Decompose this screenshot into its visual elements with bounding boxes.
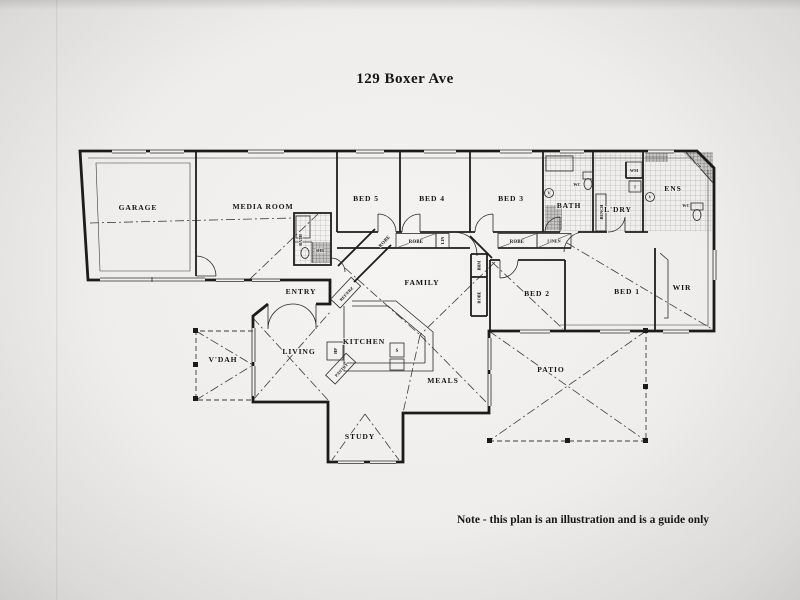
- room-label-bed3: BED 3: [498, 194, 524, 203]
- fixture-label-bath-small: BATH: [298, 233, 303, 245]
- room-label-bath: BATH: [557, 201, 582, 210]
- room-label-living: LIVING: [282, 347, 315, 356]
- room-label-vdah: V'DAH: [209, 355, 238, 364]
- fixture-label-robe-bed3: ROBE: [510, 240, 524, 245]
- room-label-wir: WIR: [673, 283, 692, 292]
- room-label-bed1: BED 1: [614, 287, 640, 296]
- room-label-garage: GARAGE: [119, 203, 158, 212]
- room-label-ens: ENS: [664, 184, 681, 193]
- fixture-label-wm: WM: [630, 168, 638, 173]
- room-label-media-room: MEDIA ROOM: [232, 202, 293, 211]
- fixture-label-shr: SHR: [316, 248, 326, 253]
- floor-plan-drawing: 129 Boxer Ave Note - this plan is an ill…: [0, 0, 800, 600]
- scanned-floor-plan-photo: 129 Boxer Ave Note - this plan is an ill…: [0, 0, 800, 600]
- fixture-label-v-ens: V: [648, 195, 651, 200]
- fixture-label-t: T: [634, 185, 637, 190]
- fixture-label-lin: LIN: [440, 237, 445, 244]
- plan-title: 129 Boxer Ave: [356, 71, 454, 87]
- room-label-bed2: BED 2: [524, 289, 550, 298]
- fixture-label-s: S: [396, 349, 399, 354]
- plan-note: Note - this plan is an illustration and …: [457, 514, 709, 526]
- room-label-ldry: L'DRY: [604, 205, 632, 214]
- room-label-bed4: BED 4: [419, 194, 445, 203]
- room-label-entry: ENTRY: [286, 287, 317, 296]
- fixture-label-robe-bed4: ROBE: [409, 240, 423, 245]
- fixture-label-wc-ens: WC: [682, 203, 689, 208]
- room-label-family: FAMILY: [405, 278, 440, 287]
- fixture-label-wc-bath: WC: [573, 182, 580, 187]
- fixture-label-linen: LINEN: [547, 239, 560, 244]
- fixture-label-v-bath: V: [547, 191, 550, 196]
- room-label-study: STUDY: [345, 432, 375, 441]
- room-label-kitchen: KITCHEN: [343, 337, 385, 346]
- fixture-label-bench: BENCH: [599, 204, 604, 220]
- roof-lines: [90, 214, 712, 460]
- fixture-label-hp: HP: [333, 348, 338, 354]
- room-label-meals: MEALS: [427, 376, 459, 385]
- room-label-bed5: BED 5: [353, 194, 379, 203]
- fixture-label-brm: BRM: [477, 261, 482, 271]
- room-label-patio: PATIO: [537, 365, 564, 374]
- verandah: [193, 328, 253, 401]
- patio: [487, 328, 648, 443]
- fixture-label-robe-bed2: ROBE: [477, 291, 482, 303]
